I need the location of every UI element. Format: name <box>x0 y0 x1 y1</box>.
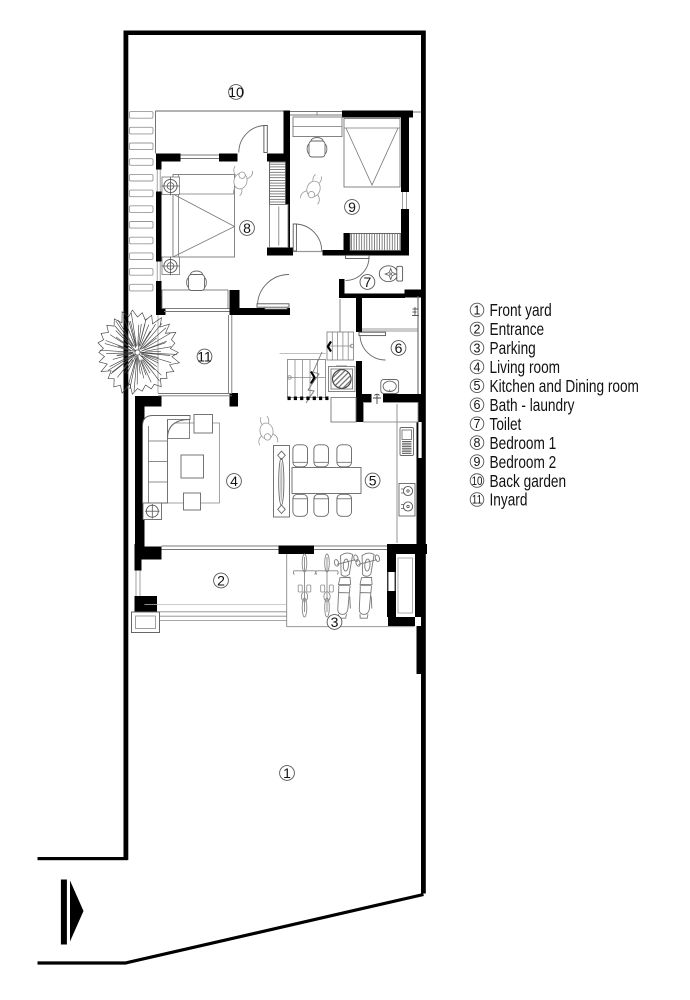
svg-text:3: 3 <box>474 341 481 355</box>
svg-text:1: 1 <box>474 303 481 317</box>
svg-text:Bedroom 2: Bedroom 2 <box>490 453 557 472</box>
svg-text:Parking: Parking <box>490 340 536 359</box>
svg-text:2: 2 <box>474 322 481 336</box>
svg-text:6: 6 <box>474 398 481 412</box>
svg-text:10: 10 <box>228 84 244 100</box>
svg-text:Entrance: Entrance <box>490 321 545 340</box>
svg-text:6: 6 <box>395 340 403 356</box>
svg-text:8: 8 <box>243 220 251 236</box>
svg-text:1: 1 <box>283 765 291 781</box>
svg-text:10: 10 <box>472 475 483 488</box>
svg-text:5: 5 <box>474 379 481 393</box>
svg-text:8: 8 <box>474 436 481 450</box>
svg-text:2: 2 <box>217 573 225 589</box>
svg-text:Living room: Living room <box>490 359 561 378</box>
svg-text:9: 9 <box>474 455 481 469</box>
svg-text:11: 11 <box>197 349 212 365</box>
svg-text:4: 4 <box>474 360 481 374</box>
svg-text:3: 3 <box>331 614 339 630</box>
svg-text:5: 5 <box>369 473 377 489</box>
svg-text:11: 11 <box>472 494 482 507</box>
svg-text:Bedroom 1: Bedroom 1 <box>490 434 557 453</box>
svg-text:Back garden: Back garden <box>490 472 567 491</box>
svg-text:Kitchen and Dining room: Kitchen and Dining room <box>490 378 639 397</box>
svg-text:Bath - laundry: Bath - laundry <box>490 396 575 415</box>
svg-text:Toilet: Toilet <box>490 415 522 434</box>
svg-text:4: 4 <box>230 473 238 489</box>
svg-text:Front yard: Front yard <box>490 302 552 321</box>
svg-text:7: 7 <box>364 274 372 290</box>
svg-text:7: 7 <box>474 417 481 431</box>
svg-text:9: 9 <box>348 199 356 215</box>
svg-text:Inyard: Inyard <box>490 491 528 510</box>
